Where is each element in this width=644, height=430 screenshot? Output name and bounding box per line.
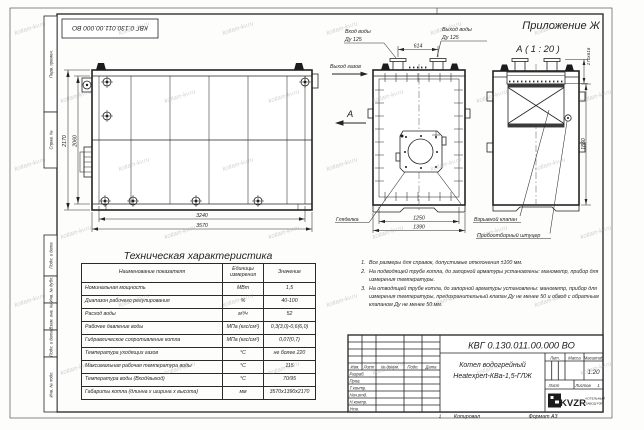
tech-cell: 0,3(3,0)-0,6(6,0) [264, 322, 316, 335]
zone-number: 1 [439, 414, 442, 419]
tech-cell: Расход воды [82, 309, 223, 322]
tech-cell: °С [223, 361, 264, 374]
dim-1390: 1390 [413, 225, 425, 231]
tech-cell: Диапазон рабочего регулирования [82, 296, 223, 309]
note-item: На отводящей трубе котла, до запорной ар… [367, 286, 613, 310]
tech-cell: 40-100 [264, 296, 316, 309]
sign-row: Разраб. [350, 372, 365, 377]
mass-label: Масса [568, 356, 581, 361]
margin-label: Взам. инв. № [49, 303, 54, 329]
dim-2170: 2170 [62, 135, 68, 148]
lit-label: Лит. [549, 356, 560, 361]
dim-2060: 2060 [73, 135, 79, 148]
rev-col: Подп. [407, 364, 418, 369]
gas-flow-arrow [361, 72, 369, 77]
sheets-value: 1 [597, 383, 599, 388]
tech-row: Расход водым³/ч52 [82, 309, 316, 322]
water-inlet-dn: Ду 125 [344, 37, 362, 43]
tech-row: Температура уходящих газов°Сне более 220 [82, 348, 316, 361]
tech-cell: Габариты котла (длинна х ширина х высота… [82, 387, 223, 400]
dim-3570: 3570 [196, 223, 208, 229]
tech-cell: МВт [223, 283, 264, 296]
water-outlet-nozzle [430, 59, 446, 62]
tech-cell: % [223, 296, 264, 309]
tech-row: Номинальная мощностьМВт1,5 [82, 283, 316, 296]
tech-cell: МПа (кгс/см²) [223, 322, 264, 335]
water-inlet-label: Вход воды [345, 29, 371, 35]
tech-cell: мм [223, 387, 264, 400]
tech-row: Гидравлическое сопротивление котлаМПа (к… [82, 335, 316, 348]
sign-row: Утв. [350, 407, 360, 412]
sign-row: Н.контр. [350, 400, 368, 405]
water-outlet-dn: Ду 125 [441, 35, 459, 41]
company-line1: КОТЕЛЬНЫЙ [586, 397, 605, 401]
lifting-lug [500, 65, 509, 72]
tech-cell: °С [223, 348, 264, 361]
notes: Все размеры для справок, допустимые откл… [355, 260, 613, 311]
doc-number: КВГ 0.130.011.00.000 ВО [468, 341, 575, 351]
tech-col-header: Единицы измерения [223, 264, 264, 283]
company-line2: ЗАВОД РЭП [586, 402, 604, 406]
tech-cell: Температура уходящих газов [82, 348, 223, 361]
product-name-line2: Heatexpert-КВа-1,5-ГЛЖ [453, 373, 532, 380]
format-label: Формат А3 [529, 414, 558, 420]
tech-col-header: Значение [264, 264, 316, 283]
logo-text: KVZR [560, 398, 586, 409]
lifting-lug [381, 64, 390, 71]
tech-table: Наименование показателя Единицы измерени… [81, 263, 315, 400]
tech-cell: 70/95 [264, 374, 316, 387]
note-item: На подводящей трубе котла, до запорной а… [367, 269, 613, 285]
tech-cell: Максимальная рабочая температура воды [82, 361, 223, 374]
explosion-valve-label: Взрывной клапан [474, 216, 517, 223]
dim-1860: 1860 [581, 138, 587, 150]
dim-3240: 3240 [196, 213, 208, 219]
water-inlet-nozzle [390, 59, 406, 62]
drawing-sheet: КВГ 0.130.011.00.000 ВО Перв. примен. Сп… [0, 0, 644, 430]
note-item: Все размеры для справок, допустимые откл… [367, 260, 613, 268]
product-name-line1: Котел водогрейный [459, 361, 526, 369]
tech-cell: МПа (кгс/см²) [223, 335, 264, 348]
rev-col: № докум. [381, 364, 399, 369]
gas-outlet-label: Выход газов [330, 64, 361, 70]
margin-label: Инв. № дубл. [49, 277, 54, 303]
sheet-label: Лист [548, 383, 560, 388]
gas-duct [507, 72, 565, 84]
section-letter: А [346, 109, 353, 119]
scale-label: Масштаб [584, 356, 604, 361]
margin-label: Инв. № подл. [49, 372, 54, 398]
tech-cell: Рабочее давление воды [82, 322, 223, 335]
tech-cell: м³/ч [223, 309, 264, 322]
left-margin-cells: Перв. примен. Справ. № Подп. и дата Инв.… [44, 16, 57, 412]
tech-col-header: Наименование показателя [82, 264, 223, 283]
section-a-view: А ( 1 : 20 ) 170х616 1860 Взрывной кла [473, 44, 591, 239]
tech-cell: не более 220 [264, 348, 316, 361]
tech-row: Диапазон рабочего регулирования%40-100 [82, 296, 316, 309]
tech-row: Рабочее давление водыМПа (кгс/см²)0,3(3,… [82, 322, 316, 335]
tech-cell: 52 [264, 309, 316, 322]
bolt-fitting [83, 81, 91, 89]
title-block: Изм. Лист № докум. Подп. Дата Разраб. Пр… [348, 335, 605, 412]
margin-label: Справ. № [49, 130, 54, 149]
lifting-lug [96, 63, 106, 70]
margin-label: Подп. и дата [49, 330, 54, 357]
section-arrow [335, 120, 344, 125]
side-stub [312, 74, 318, 88]
margin-label: Подп. и дата [49, 242, 54, 269]
rev-col: Дата [424, 364, 437, 369]
dim-1250: 1250 [413, 216, 425, 222]
sign-row: Нач.отд. [350, 393, 368, 398]
front-view: 614 Вход воды Ду 125 Выход воды Ду 125 В… [330, 27, 487, 233]
tech-row: Температура воды (Вход/выход)°С70/95 [82, 374, 316, 387]
sight-glass-label: Гляделка [336, 217, 359, 223]
tech-cell: 3570х1390х2170 [264, 387, 316, 400]
tech-row: Габариты котла (длинна х ширина х высота… [82, 387, 316, 400]
side-view: 2170 2060 3240 3570 [62, 63, 318, 232]
dim-614: 614 [414, 44, 423, 50]
rev-col: Изм. [351, 364, 360, 369]
sign-row: Т.контр. [350, 386, 367, 391]
water-outlet-label: Выход воды [442, 27, 472, 33]
scale-value: 1:20 [587, 369, 600, 376]
tech-cell: 1,5 [264, 283, 316, 296]
tech-cell: Температура воды (Вход/выход) [82, 374, 223, 387]
rev-col: Лист [363, 364, 375, 369]
tech-cell: 115 [264, 361, 316, 374]
lifting-lug [565, 65, 574, 72]
tech-row: Максимальная рабочая температура воды°С1… [82, 361, 316, 374]
dim-170x616: 170х616 [586, 47, 591, 65]
sampling-port-label: Пробоотборный штуцер [477, 232, 540, 239]
section-a-title: А ( 1 : 20 ) [515, 44, 559, 54]
tech-table-title: Техническая характеристика [124, 250, 273, 262]
tech-cell: Номинальная мощность [82, 283, 223, 296]
lifting-lug [450, 64, 459, 71]
tech-cell: °С [223, 374, 264, 387]
copied-label: Копировал [454, 414, 480, 420]
tech-header-row: Наименование показателя Единицы измерени… [82, 264, 316, 283]
margin-label: Перв. примен. [49, 50, 54, 78]
sign-row: Пров. [350, 379, 361, 384]
annex-title: Приложение Ж [522, 20, 600, 32]
tech-cell: 0,07(0,7) [264, 335, 316, 348]
tech-cell: Гидравлическое сопротивление котла [82, 335, 223, 348]
lifting-lug [294, 63, 304, 70]
top-doc-number: КВГ 0.130.011.00.000 ВО [72, 24, 148, 31]
sheets-label: Листов [574, 383, 591, 388]
